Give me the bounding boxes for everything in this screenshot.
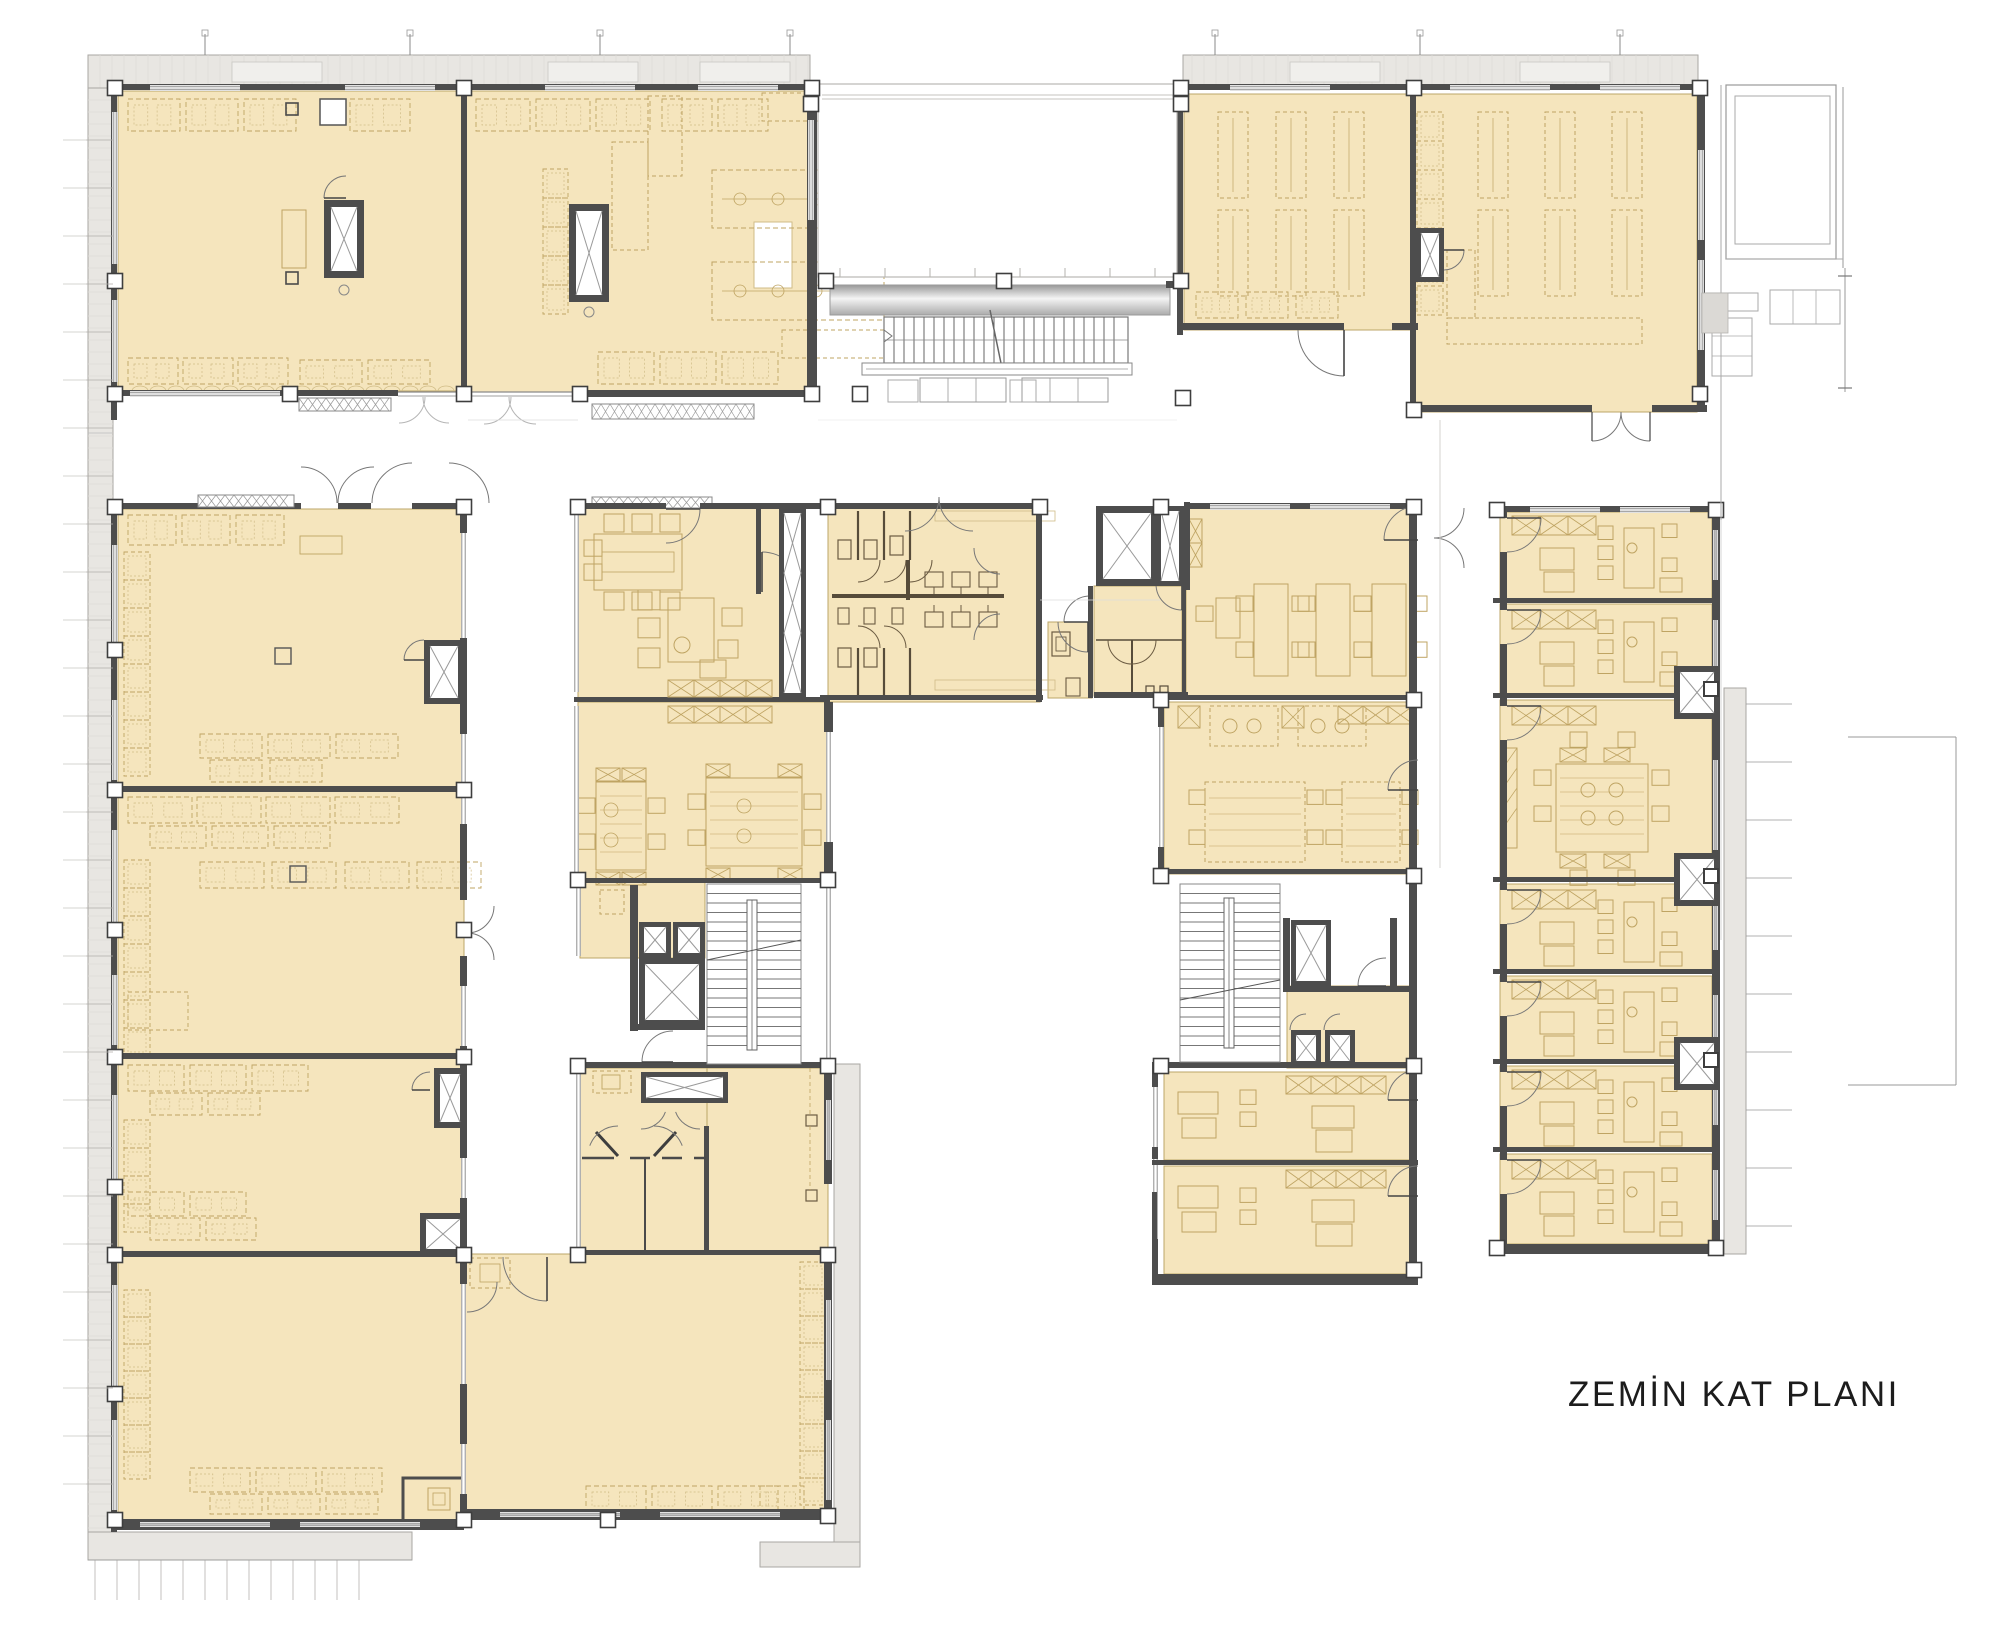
svg-text:ZEMİN KAT PLANI: ZEMİN KAT PLANI xyxy=(1568,1375,1900,1414)
